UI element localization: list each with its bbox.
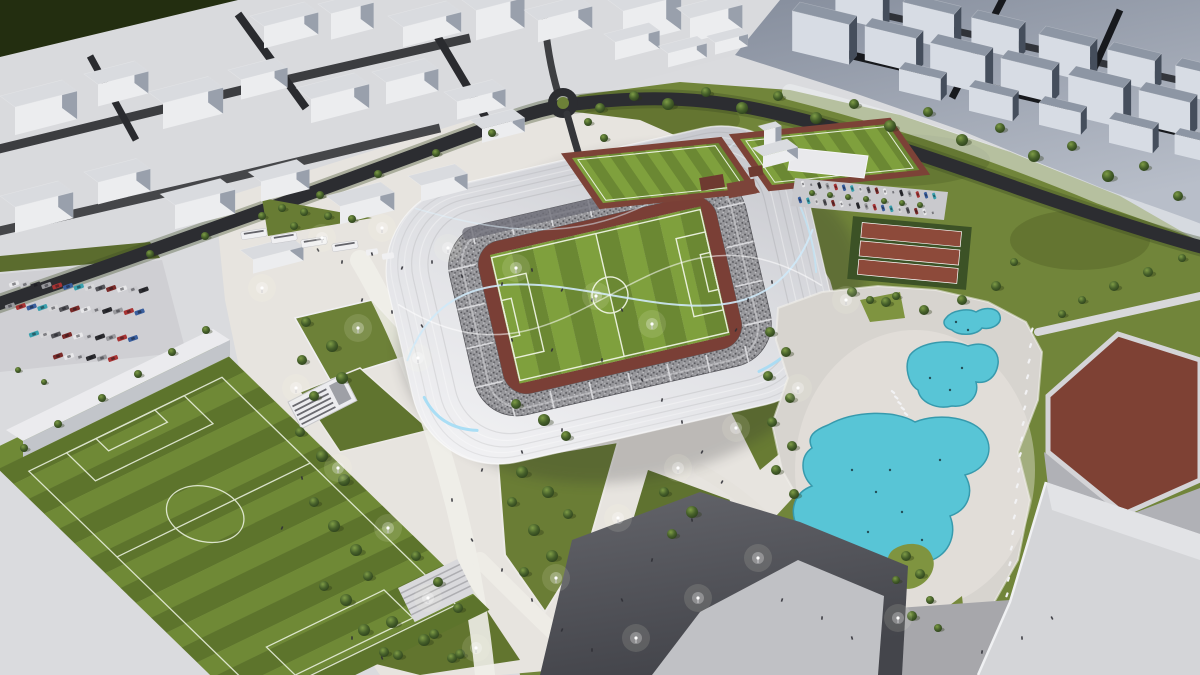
street-light [462,634,490,662]
person [431,260,433,263]
tree-canopy [98,394,106,402]
street-light [414,584,442,612]
tree-canopy [1102,170,1114,182]
tree-canopy [374,170,382,178]
swimmer [867,531,869,533]
tree-canopy [561,431,571,441]
tree-canopy [892,292,900,300]
tree-canopy [849,99,859,109]
street-light [248,274,276,302]
light-head [380,226,383,229]
person [821,616,823,620]
street-light [404,344,432,372]
tree-canopy [809,190,815,196]
courts [857,222,961,283]
street-light [434,234,462,262]
tree-canopy [488,129,496,137]
person [1021,636,1023,640]
tree-canopy [736,102,748,114]
tree-canopy [295,427,305,437]
swimmer [851,469,853,471]
tree-canopy [326,340,338,352]
tree-canopy [957,295,967,305]
tree-canopy [773,91,783,101]
tree-canopy [863,196,869,202]
light-head [294,386,297,389]
tree-canopy [563,509,573,519]
tree-canopy [923,107,933,117]
tree-canopy [789,489,799,499]
swimmer [889,469,891,471]
tree-canopy [134,370,142,378]
tree-canopy [429,629,439,639]
person [351,636,353,639]
tree-canopy [686,506,698,518]
street-light [344,314,372,342]
street-light [622,624,650,652]
roundabout-island [557,97,569,109]
swimmer [929,377,931,379]
tree-canopy [411,551,421,561]
tree-canopy [917,202,923,208]
tree-canopy [1078,296,1086,304]
tree-canopy [1109,281,1119,291]
render-stage [0,0,1200,675]
tree-canopy [845,194,851,200]
tree-canopy [667,529,677,539]
tree-canopy [827,192,833,198]
tree-canopy [884,120,896,132]
street-light [282,374,310,402]
tree-canopy [934,624,942,632]
light-head [650,322,653,325]
swimmer [875,491,877,493]
tree-canopy [901,551,911,561]
tree-canopy [629,91,639,101]
tree-canopy [41,379,47,385]
tree-canopy [363,571,373,581]
tree-canopy [600,134,608,142]
swimmer [955,321,957,323]
tree-canopy [919,305,929,315]
tree-canopy [316,450,328,462]
light-head [426,596,429,599]
tree-canopy [899,200,905,206]
light-head [446,246,449,249]
tree-canopy [528,524,540,536]
light-head [634,636,637,639]
tree-canopy [662,98,674,110]
swimmer [901,511,903,513]
tree-canopy [810,112,822,124]
tree-canopy [892,576,900,584]
tree-canopy [336,372,348,384]
swimmer [939,459,941,461]
tree-canopy [1028,150,1040,162]
street-light [502,254,530,282]
swimmer [921,539,923,541]
swimmer [961,367,963,369]
tree-canopy [20,444,28,452]
light-head [696,596,699,599]
tree-canopy [386,616,398,628]
swimmer [967,329,969,331]
street-light [368,214,396,242]
light-head [554,576,557,579]
light-head [594,294,597,297]
street-light [664,454,692,482]
tree-canopy [881,297,891,307]
tree-canopy [297,355,307,365]
street-light [324,454,352,482]
tennis-courts [847,216,972,290]
tree-canopy [433,577,443,587]
street-light [722,414,750,442]
swimmer [949,389,951,391]
tree-canopy [881,198,887,204]
tree-canopy [319,581,329,591]
light-head [356,326,359,329]
tree-canopy [168,348,176,356]
tree-canopy [379,647,389,657]
light-head [734,426,737,429]
tree-canopy [538,414,550,426]
tree-canopy [595,103,605,113]
tree-canopy [511,399,521,409]
person [601,358,603,361]
light-head [386,526,389,529]
tree-canopy [1139,161,1149,171]
light-head [416,356,419,359]
light-head [796,386,799,389]
street-light [744,544,772,572]
street-light [832,286,860,314]
light-head [474,646,477,649]
tree-canopy [324,212,332,220]
tree-canopy [301,317,311,327]
person [451,498,453,502]
tree-canopy [763,371,773,381]
light-head [676,466,679,469]
street-light [684,584,712,612]
light-head [336,466,339,469]
tree-canopy [1178,254,1186,262]
tree-canopy [787,441,797,451]
tree-canopy [995,123,1005,133]
tree-canopy [393,650,403,660]
person [591,648,593,651]
tree-canopy [1010,258,1018,266]
tree-canopy [350,544,362,556]
tree-canopy [309,497,319,507]
tree-canopy [328,520,340,532]
tree-canopy [781,347,791,357]
street-light [638,310,666,338]
street-light [884,604,912,632]
tree-canopy [516,466,528,478]
tree-canopy [956,134,968,146]
tree-canopy [866,296,874,304]
street-light [374,514,402,542]
tree-canopy [358,624,370,636]
tree-canopy [771,465,781,475]
light-head [514,266,517,269]
tree-canopy [418,634,430,646]
tree-canopy [300,208,308,216]
tree-canopy [584,118,592,126]
light-head [756,556,759,559]
tree-canopy [348,215,356,223]
tree-canopy [659,487,669,497]
tree-canopy [991,281,1001,291]
tree-canopy [519,567,529,577]
light-head [616,516,619,519]
tree-canopy [765,327,775,337]
light-head [260,286,263,289]
tree-canopy [926,596,934,604]
tree-canopy [432,149,440,157]
tree-canopy [1173,191,1183,201]
tree-canopy [201,232,209,240]
tree-canopy [546,550,558,562]
tree-canopy [202,326,210,334]
tree-canopy [15,367,21,373]
street-light [308,224,336,252]
light-head [896,616,899,619]
tree-canopy [146,250,154,258]
tree-canopy [316,191,324,199]
street-light [604,504,632,532]
light-head [320,236,323,239]
tree-canopy [1067,141,1077,151]
person [561,428,563,432]
light-head [844,298,847,301]
tree-canopy [1058,310,1066,318]
street-light [784,374,812,402]
tree-canopy [278,204,286,212]
tree-canopy [309,391,319,401]
tree-canopy [542,486,554,498]
render-canvas [0,0,1200,675]
street-light [542,564,570,592]
tree-canopy [701,87,711,97]
tree-canopy [507,497,517,507]
tree-canopy [915,569,925,579]
tree-canopy [767,417,777,427]
tree-canopy [258,212,266,220]
tree-canopy [453,603,463,613]
tree-canopy [340,594,352,606]
tree-canopy [1143,267,1153,277]
tree-canopy [290,222,298,230]
tree-canopy [54,420,62,428]
street-light [582,282,610,310]
